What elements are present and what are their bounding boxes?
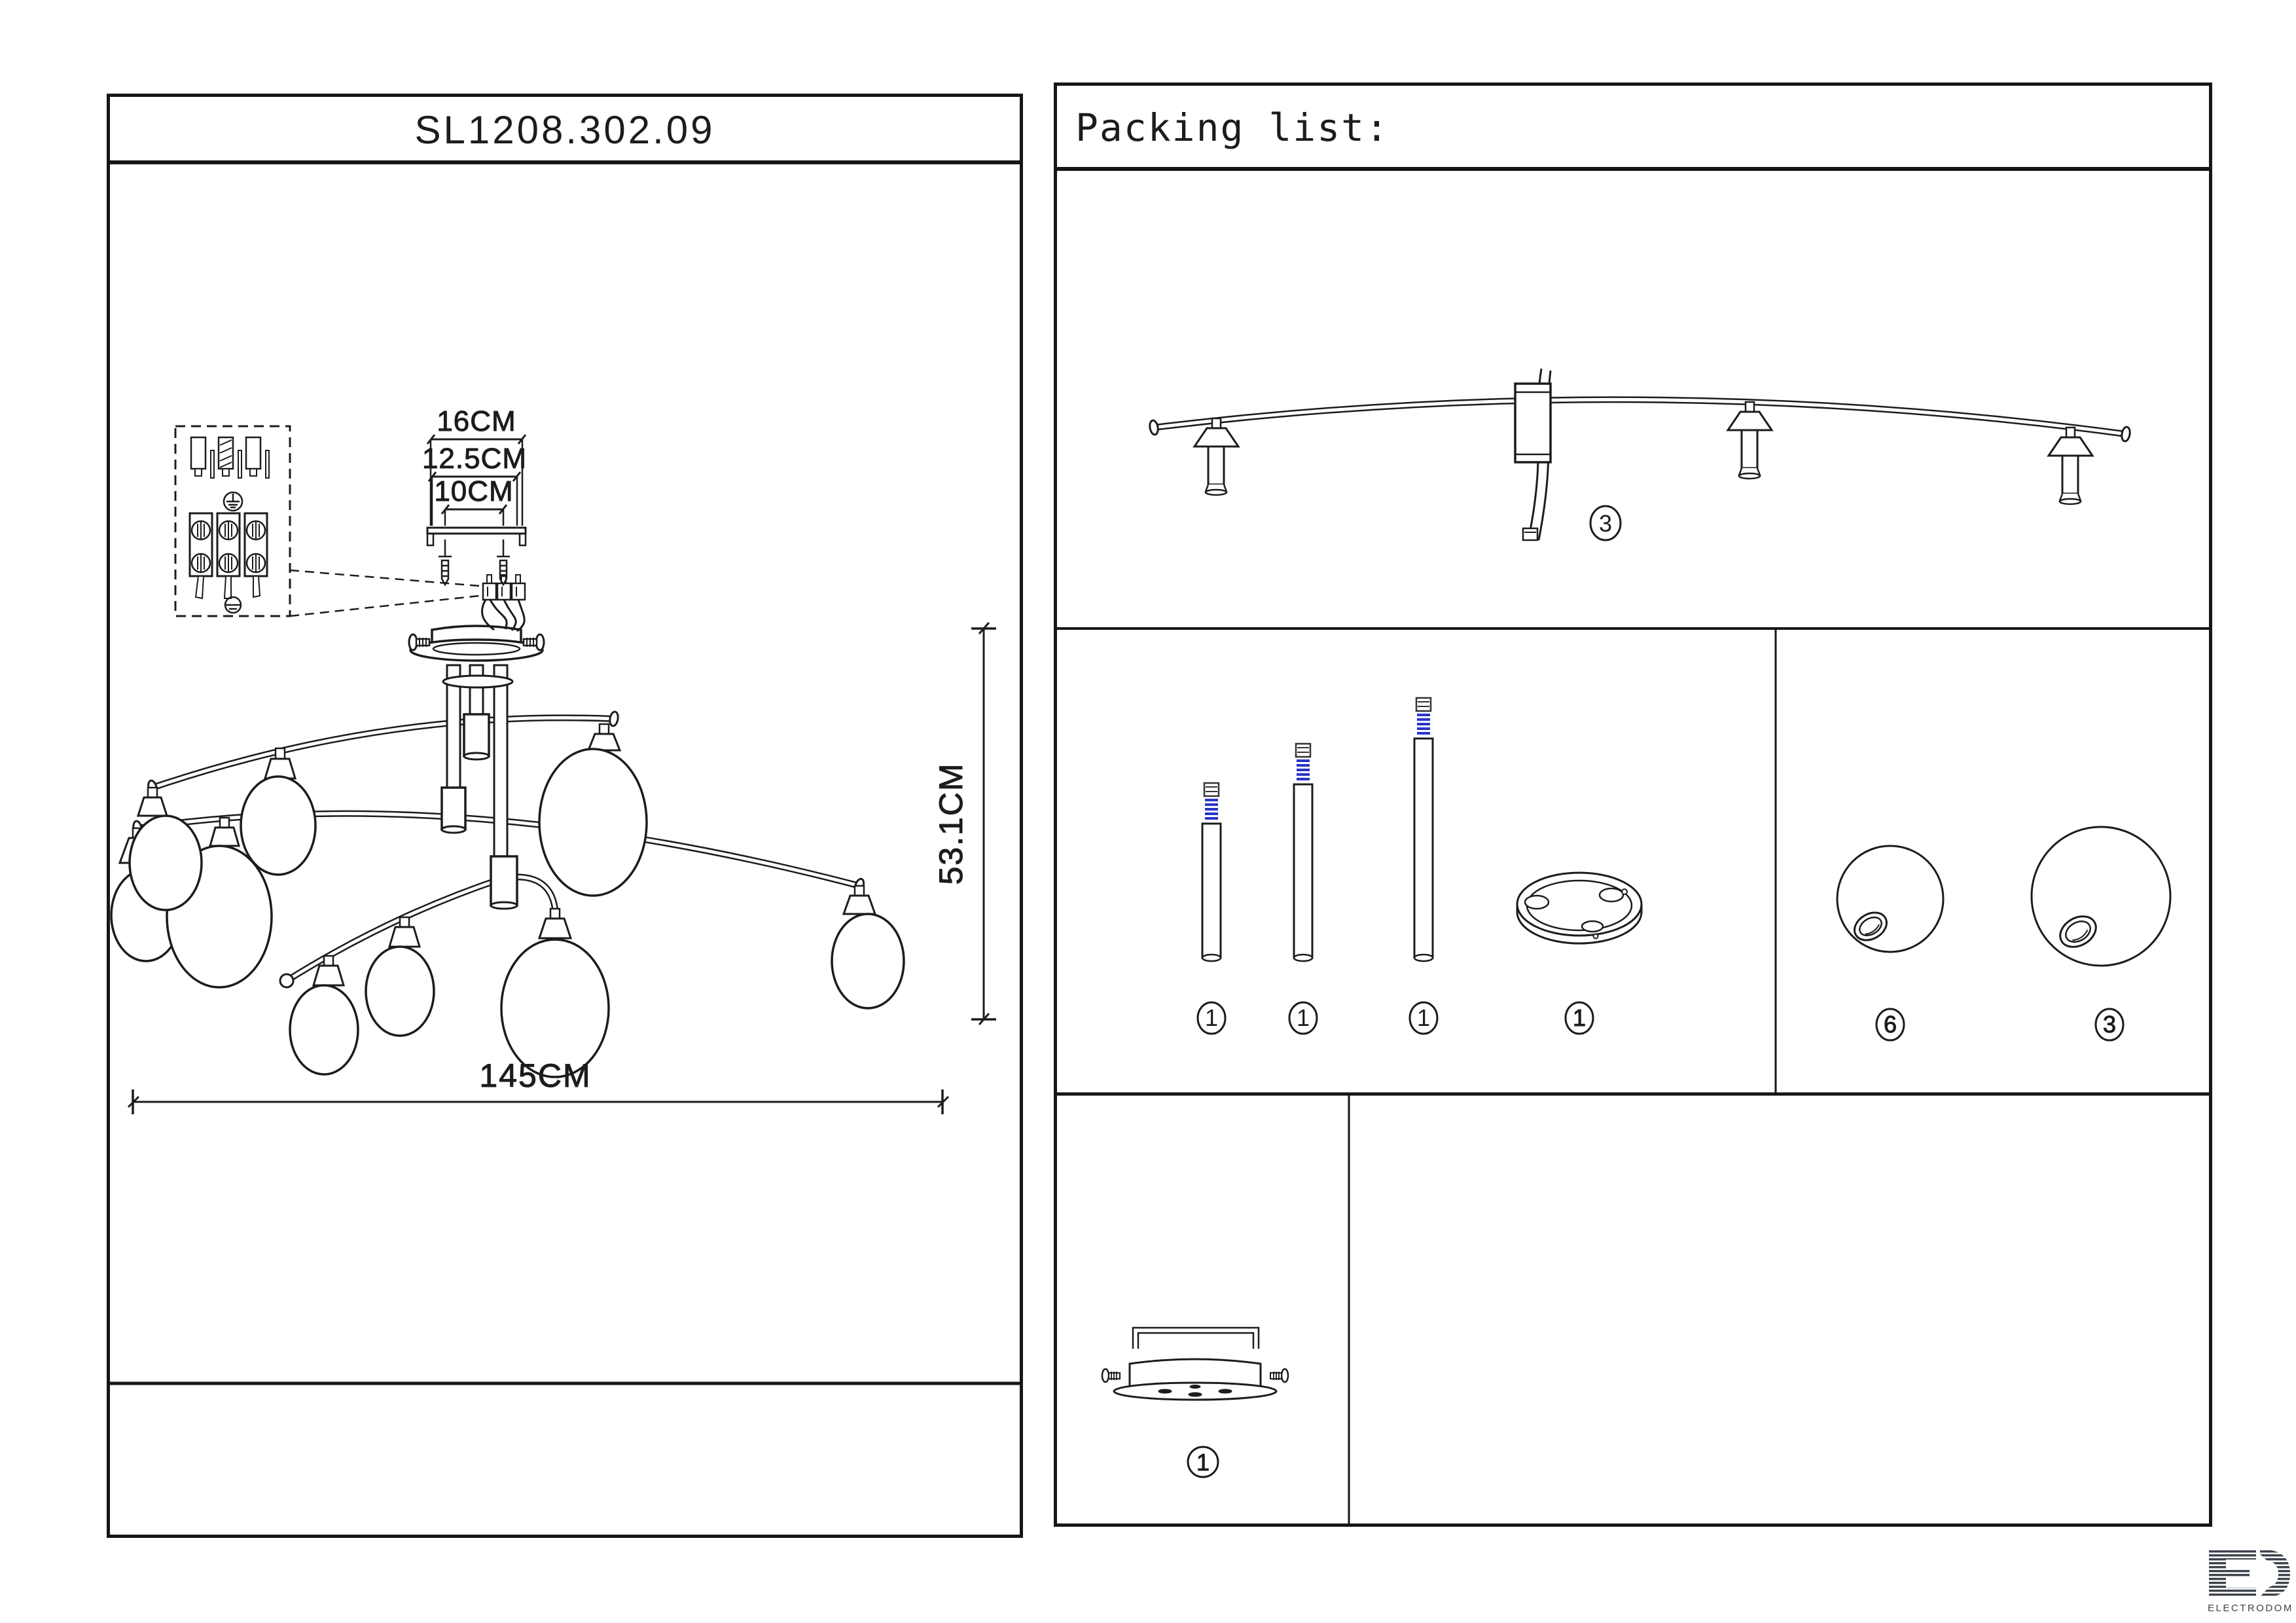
item-glass-globes: 6 3 <box>1837 827 2170 1040</box>
arm-socket-2 <box>1728 402 1772 479</box>
mounting-bracket-dimensions: 16CM 12.5CM 10CM <box>422 405 527 585</box>
packing-list-panel: Packing list: <box>1054 82 2212 1527</box>
svg-text:6: 6 <box>1884 1011 1897 1038</box>
plate-screw-left <box>1102 1369 1120 1382</box>
item-rod-short <box>1202 783 1221 961</box>
item-globe-small-qty-badge: 6 <box>1876 1009 1904 1040</box>
item-mounting-ring: 1 <box>1517 873 1641 1034</box>
ground-screw <box>225 597 241 613</box>
svg-text:1: 1 <box>1205 1004 1218 1031</box>
earth-symbol <box>224 492 242 511</box>
electrodom-logo-icon <box>2209 1550 2290 1597</box>
globe-large-top-right <box>539 724 647 896</box>
chandelier-line-drawing: 16CM 12.5CM 10CM <box>110 97 1020 1535</box>
svg-text:3: 3 <box>2103 1011 2116 1038</box>
dim-16cm-label: 16CM <box>437 405 516 437</box>
span-dimension: 145CM <box>128 1057 948 1114</box>
arm-socket-3 <box>2049 428 2092 504</box>
item-mounting-ring-qty-badge: 1 <box>1566 1002 1593 1034</box>
brand-logo-text: ELECTRODOM <box>2208 1603 2291 1614</box>
item-globe-large <box>2032 827 2170 966</box>
svg-text:1: 1 <box>1573 1004 1586 1031</box>
leader-line-1 <box>290 570 480 586</box>
item-rods: 1 1 1 <box>1198 698 1437 1034</box>
globe-large-bottom <box>501 909 609 1077</box>
item-rod-medium-qty-badge: 1 <box>1289 1002 1317 1034</box>
product-drawing-panel: SL1208.302.09 <box>107 94 1023 1538</box>
item-rod-long-qty-badge: 1 <box>1410 1002 1437 1034</box>
height-dimension: 53.1CM <box>933 623 996 1025</box>
dim-12-5cm-label: 12.5CM <box>422 443 527 475</box>
svg-text:1: 1 <box>1196 1449 1210 1476</box>
dim-10cm-label: 10CM <box>434 475 513 507</box>
arm-socket-1 <box>1194 418 1238 495</box>
terminal-blocks <box>190 513 267 598</box>
item-curved-arm: 3 <box>1149 369 2131 540</box>
leader-line-2 <box>290 596 480 616</box>
globe-small-left-upper <box>130 788 202 910</box>
dim-span-label: 145CM <box>479 1057 591 1094</box>
anchor-screw-left <box>439 539 452 585</box>
down-rods <box>442 665 517 909</box>
washer-disc <box>443 676 512 687</box>
plate-screw-right <box>1270 1369 1288 1382</box>
svg-text:1: 1 <box>1417 1004 1430 1031</box>
item-globe-small <box>1837 846 1943 952</box>
item-rod-long <box>1414 698 1433 961</box>
arm-center-connector <box>1515 384 1551 462</box>
globe-small-bottom-2 <box>366 917 434 1036</box>
globe-small-top-arc <box>241 748 315 875</box>
wire-plugs <box>191 437 269 478</box>
packing-grid-lines <box>1057 169 2209 1523</box>
svg-text:1: 1 <box>1297 1004 1310 1031</box>
item-ceiling-plate: 1 <box>1102 1328 1288 1477</box>
item-ceiling-plate-qty-badge: 1 <box>1188 1447 1218 1477</box>
brand-logo: ELECTRODOM <box>2208 1550 2291 1614</box>
dim-height-label: 53.1CM <box>933 762 969 884</box>
technical-drawing-page: { "page": { "model": "SL1208.302.09" }, … <box>0 0 2296 1623</box>
item-globe-large-qty-badge: 3 <box>2096 1009 2123 1040</box>
item-curved-arm-qty: 3 <box>1599 510 1612 537</box>
packing-list-drawing: 3 <box>1057 86 2209 1523</box>
item-curved-arm-qty-badge: 3 <box>1590 506 1621 540</box>
item-rod-medium <box>1294 744 1312 961</box>
globe-small-far-right <box>832 886 904 1008</box>
item-rod-short-qty-badge: 1 <box>1198 1002 1225 1034</box>
ceiling-canopy <box>409 626 544 687</box>
